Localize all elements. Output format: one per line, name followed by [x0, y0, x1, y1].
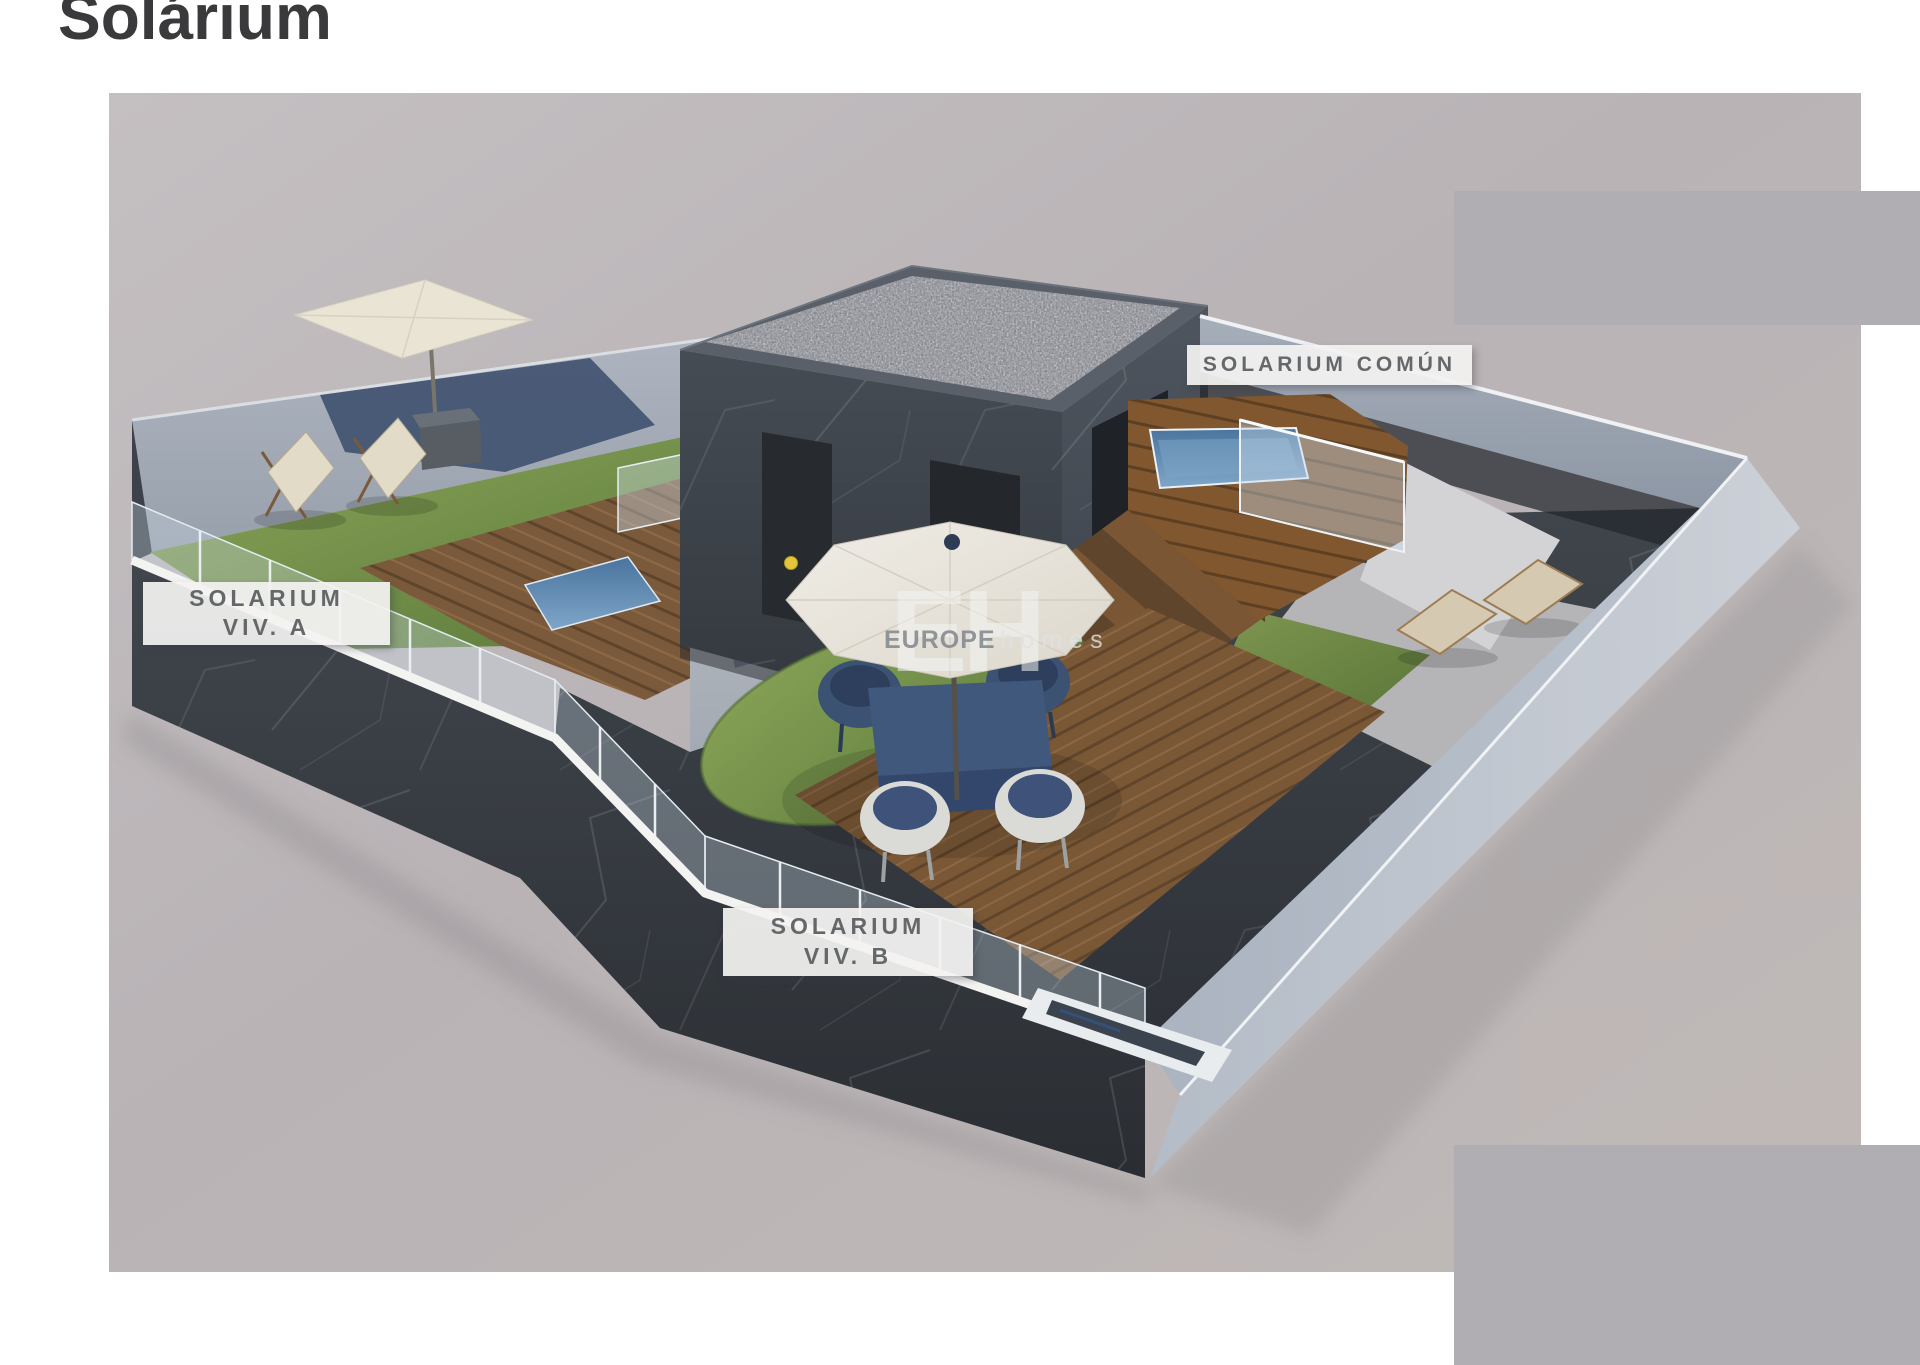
yellow-ball — [785, 557, 798, 570]
dining-table — [868, 680, 1052, 776]
label-solarium-viv-a: SOLARIUM VIV. A — [143, 582, 390, 645]
label-solarium-viv-b: SOLARIUM VIV. B — [723, 908, 973, 976]
redaction-block-bottom — [1454, 1145, 1920, 1365]
solarium-page: Solárium — [0, 0, 1920, 1280]
viv-b-umbrella — [786, 522, 1114, 678]
redaction-block-top — [1454, 191, 1920, 325]
label-line: SOLARIUM — [143, 584, 390, 613]
page-title: Solárium — [58, 0, 332, 51]
label-line: VIV. B — [723, 941, 973, 971]
label-line: SOLARIUM COMÚN — [1203, 353, 1456, 376]
label-line: VIV. A — [143, 613, 390, 642]
render-image — [109, 93, 1861, 1272]
umbrella-planter — [420, 420, 482, 470]
label-line: SOLARIUM — [723, 911, 973, 941]
label-solarium-comun: SOLARIUM COMÚN — [1187, 345, 1472, 385]
umbrella-finial — [944, 534, 960, 550]
